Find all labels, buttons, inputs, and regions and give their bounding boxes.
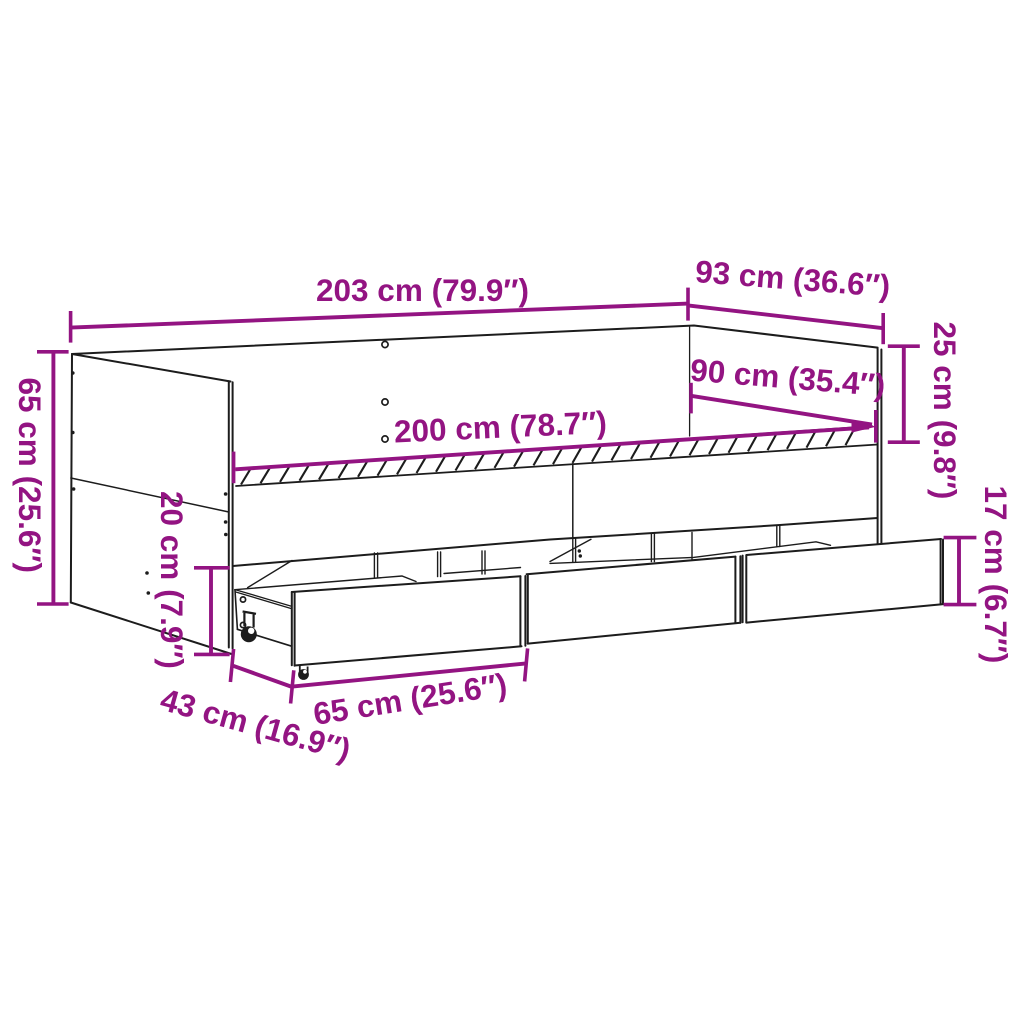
svg-text:20 cm (7.9″): 20 cm (7.9″) (154, 491, 190, 669)
svg-text:25 cm (9.8″): 25 cm (9.8″) (927, 322, 963, 500)
svg-text:203 cm (79.9″): 203 cm (79.9″) (316, 272, 529, 308)
svg-text:17 cm (6.7″): 17 cm (6.7″) (978, 486, 1014, 664)
svg-text:65 cm (25.6″): 65 cm (25.6″) (12, 378, 48, 573)
